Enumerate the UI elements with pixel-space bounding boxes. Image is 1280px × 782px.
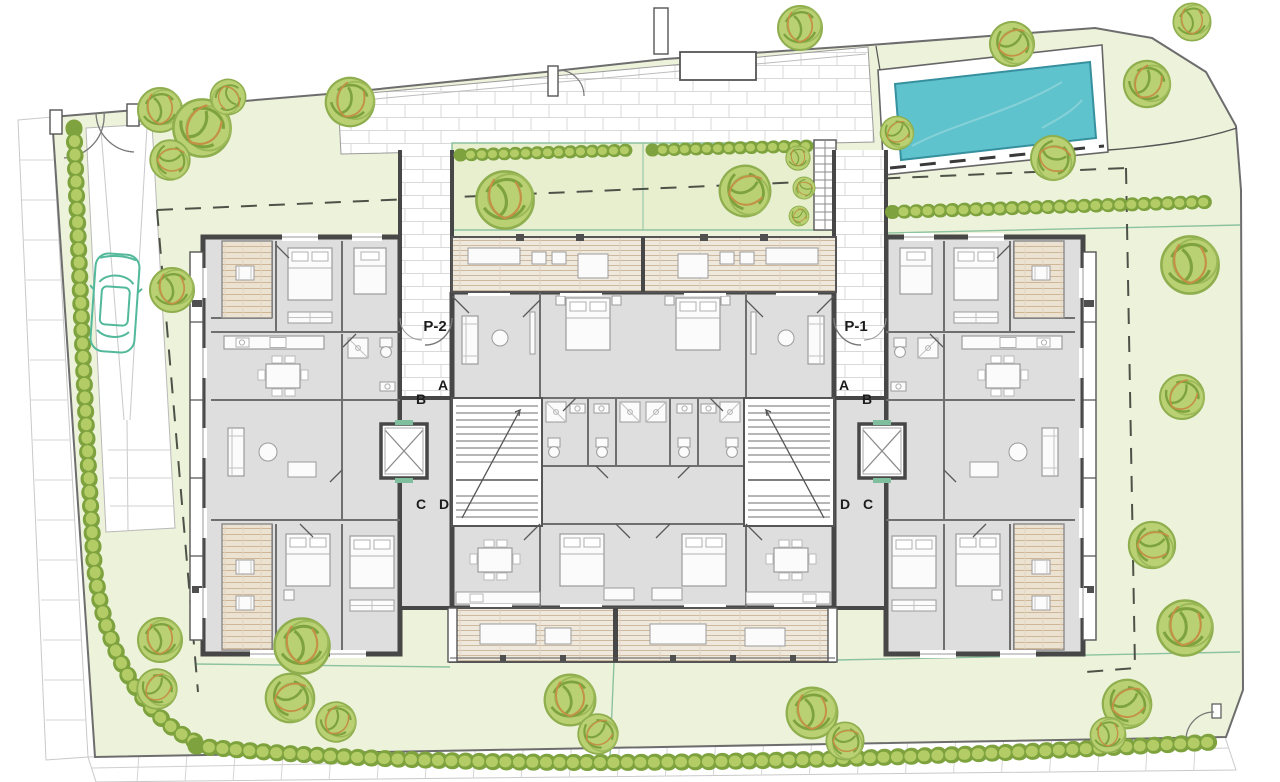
tree-icon	[1161, 236, 1218, 293]
label-core-p2: P-2	[423, 318, 446, 335]
label-unit-a-left: A	[438, 377, 448, 393]
tree-icon	[476, 171, 533, 228]
tree-icon	[778, 6, 822, 50]
site-plan-svg: P-2 P-1 A B C D A B D C	[0, 0, 1280, 782]
tree-icon	[150, 268, 194, 312]
label-unit-c-right: C	[863, 496, 873, 512]
label-unit-b-right: B	[862, 391, 872, 407]
tree-icon	[1129, 522, 1175, 568]
site-plan-drawing: P-2 P-1 A B C D A B D C	[0, 0, 1280, 782]
terrace-deck-top	[452, 234, 836, 292]
tree-icon	[138, 618, 182, 662]
tree-icon	[1090, 717, 1125, 752]
tree-icon	[786, 146, 810, 170]
label-unit-a-right: A	[839, 377, 849, 393]
tree-icon	[1173, 3, 1210, 40]
tree-icon	[275, 619, 330, 674]
label-unit-c-left: C	[416, 496, 426, 512]
terrace-deck-bottom	[448, 608, 837, 662]
tree-icon	[150, 140, 190, 180]
label-unit-b-left: B	[416, 391, 426, 407]
label-core-p1: P-1	[844, 318, 867, 335]
tree-icon	[826, 722, 863, 759]
label-unit-d-left: D	[439, 496, 449, 512]
label-unit-d-right: D	[840, 496, 850, 512]
